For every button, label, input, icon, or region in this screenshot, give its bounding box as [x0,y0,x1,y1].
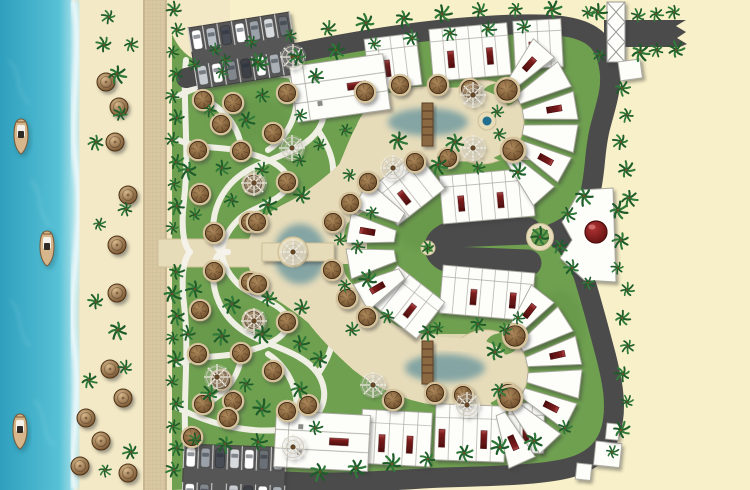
car-body [272,487,282,490]
car-windshield [187,452,194,456]
umbrella-tip [122,397,125,400]
roof-terrace-accent [447,51,454,68]
garden-hut [230,342,252,364]
parked-car [272,487,282,490]
umbrella-pole [391,166,395,170]
hut-roof [426,384,443,401]
outbuilding-roof [575,463,592,480]
hut-roof [232,142,249,159]
hut-roof [341,194,358,211]
car-body [229,485,239,490]
hut-roof [264,124,281,141]
umbrella-pole [465,403,469,407]
beach-umbrella [119,186,137,204]
garden-hut [276,82,298,104]
garden-hut [189,183,211,205]
garden-hut [339,192,361,214]
hut-roof [429,76,446,93]
palm-trunk [209,109,211,111]
umbrella-tip [109,368,112,371]
hut-roof [278,84,295,101]
hut-roof [324,213,341,230]
entrance-gate [607,2,625,62]
garden-hut [357,171,379,193]
parked-car [199,484,209,490]
garden-hut [322,211,344,233]
car-body [186,448,196,467]
hut-roof [191,185,208,202]
hut-roof [191,301,208,318]
hut-roof [323,261,340,278]
garden-hut [404,151,426,173]
red-dome [585,221,607,243]
pool-deep-spot [405,354,485,382]
umbrella-tip [116,292,119,295]
garden-hut [500,137,526,163]
log-bridge [422,341,433,384]
car-body [230,449,240,468]
parked-car [258,486,268,490]
garden-hut [276,400,298,422]
boat-cabin [44,243,50,250]
spoke-umbrella [241,170,267,196]
garden-hut [427,74,449,96]
hut-roof [359,173,376,190]
hut-roof [248,213,265,230]
beach-umbrella [114,389,132,407]
outbuilding-roof [618,59,642,81]
garden-hut [262,122,284,144]
sea [0,0,79,490]
umbrella-pole [291,445,295,449]
roof-terrace-accent [470,289,477,305]
umbrella-tip [105,81,108,84]
beach-umbrella [77,409,95,427]
umbrella-tip [127,194,130,197]
garden-hut [217,407,239,429]
umbrella-pole [290,146,294,150]
garden-hut [276,311,298,333]
car-windshield [202,453,209,457]
spoke-umbrella [280,239,306,265]
spa-water [483,117,492,126]
hut-roof [500,388,520,408]
umbrella-pole [252,181,256,185]
spoke-umbrella [460,135,486,161]
roof-terrace-accent [486,47,493,64]
umbrella-tip [85,417,88,420]
palm-trunk [617,267,619,269]
beach-umbrella [106,133,124,151]
outbuilding [575,463,592,480]
car-windshield [217,453,224,457]
palm-trunk [437,327,439,329]
hut-roof [278,402,295,419]
log-bridge [422,103,433,146]
car-body [201,448,211,467]
hut-roof [212,115,229,132]
garden-hut [222,92,244,114]
garden-hut [247,273,269,295]
hut-roof [391,76,408,93]
parked-car [185,484,195,490]
hut-roof [205,262,222,279]
beach-umbrella [108,284,126,302]
parked-car [201,448,211,467]
hut-roof [299,396,316,413]
hut-roof [358,308,375,325]
hut-roof [278,173,295,190]
spoke-umbrella [279,135,305,161]
roof-terrace-accent [497,192,504,208]
garden-hut [424,382,446,404]
roof-terrace-accent [509,293,516,309]
beach-umbrella [101,360,119,378]
roof-terrace-accent [480,431,487,449]
hut-roof [497,80,517,100]
palm-trunk [251,41,253,43]
roof-terrace-accent [406,436,413,454]
hut-roof [249,275,266,292]
spoke-umbrella [204,364,230,390]
roof-vent [317,101,323,107]
spoke-umbrella [454,392,480,418]
log-bridge-north [422,103,433,146]
garden-hut [230,140,252,162]
umbrella-tip [127,472,130,475]
garden-hut [203,260,225,282]
beach-umbrella [119,464,137,482]
car-body [258,486,268,490]
umbrella-pole [371,383,375,387]
garden-hut [210,113,232,135]
resort-master-plan [0,0,750,490]
parked-car [186,448,196,467]
car-windshield [231,454,238,458]
hut-roof [264,362,281,379]
garden-hut [187,343,209,365]
hut-roof [406,153,423,170]
garden-hut [356,306,378,328]
umbrella-pole [215,375,219,379]
dome-highlight [589,225,596,230]
car-body [244,450,254,469]
hut-roof [189,345,206,362]
hut-roof [232,344,249,361]
umbrella-tip [100,440,103,443]
hut-roof [278,313,295,330]
hut-roof [356,83,373,100]
garden-hut [203,222,225,244]
parking-lot [182,444,286,490]
umbrella-pole [291,250,295,254]
car-windshield [260,455,267,459]
parked-car [259,450,269,469]
umbrella-pole [252,319,256,323]
site-plan-canvas [0,0,750,490]
garden-hut [321,259,343,281]
hut-roof [505,326,525,346]
spoke-umbrella [380,155,406,181]
villa-row [429,23,511,82]
hut-roof [224,94,241,111]
spoke-umbrella [360,372,386,398]
boat-cabin [17,426,23,433]
car-body [243,486,253,490]
boat-cabin [18,131,24,138]
umbrella-tip [116,244,119,247]
parked-car [230,449,240,468]
garden-hut [187,139,209,161]
outbuilding [618,59,642,81]
roof-terrace-accent [458,196,465,212]
spoke-umbrella [460,82,486,108]
garden-hut [354,81,376,103]
car-body [259,450,269,469]
garden-hut [382,389,404,411]
parked-car [229,485,239,490]
umbrella-tip [79,465,82,468]
hut-roof [503,140,523,160]
car-windshield [246,454,253,458]
hut-roof [189,141,206,158]
beach-umbrella [108,236,126,254]
beach-umbrella [71,457,89,475]
roof-terrace-accent [378,434,385,452]
garden-hut [336,287,358,309]
spoke-umbrella [280,434,306,460]
garden-hut [494,77,520,103]
roof-terrace-accent [438,429,445,447]
hut-roof [384,391,401,408]
umbrella-pole [471,146,475,150]
garden-hut [262,360,284,382]
garden-hut [502,323,528,349]
roof-vent [298,424,303,429]
palm-trunk [371,211,373,213]
log-bridge-south [422,341,433,384]
hut-roof [219,409,236,426]
beach-umbrella [92,432,110,450]
parked-car [243,486,253,490]
garden-hut [246,211,268,233]
umbrella-pole [471,93,475,97]
garden-hut [276,171,298,193]
umbrella-tip [114,141,117,144]
hut-roof [338,289,355,306]
garden-hut [189,299,211,321]
hut-roof [205,224,222,241]
garden-hut [389,74,411,96]
roof-terrace-accent [329,438,348,446]
parked-car [244,450,254,469]
